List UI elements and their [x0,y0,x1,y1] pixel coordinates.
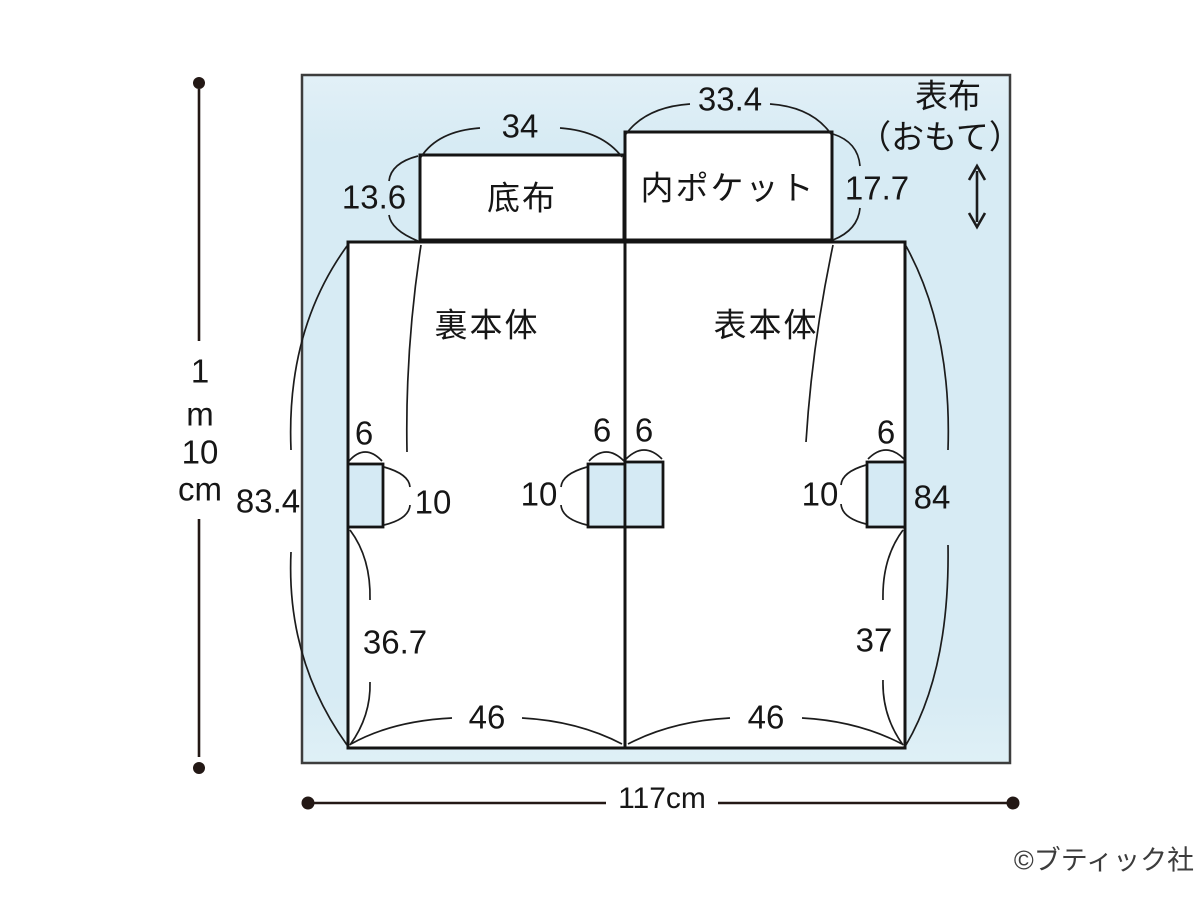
cutting-layout-diagram: 底布 内ポケット 裏本体 表本体 34 33.4 13.6 17.7 83.4 … [0,0,1200,900]
dim-omote-lower: 37 [856,624,893,657]
dim-notch-width-left: 6 [355,417,373,450]
piece-ura-label: 裏本体 [435,309,540,342]
dim-soko-height: 13.6 [342,181,406,214]
dim-notch-depth-center: 10 [521,478,558,511]
dim-omote-height: 84 [914,481,951,514]
dim-notch-width-center-left: 6 [593,414,611,447]
piece-soko-label: 底布 [487,182,557,215]
dim-notch-width-right: 6 [877,416,895,449]
notch-center-left-rect [588,464,625,527]
dim-notch-depth-right: 10 [802,478,839,511]
fabric-surface-label-1: 表布 [915,80,981,113]
dim-notch-depth-left: 10 [415,486,452,519]
piece-pocket-label: 内ポケット [641,172,816,205]
dim-ura-bottom-width: 46 [469,701,506,734]
notch-right-rect [867,462,905,527]
fabric-height-part-4: cm [178,473,222,506]
dim-soko-width: 34 [502,110,539,143]
dim-notch-width-center-right: 6 [635,414,653,447]
dim-omote-bottom-width: 46 [748,701,785,734]
fabric-height-part-1: 1 [191,355,209,388]
copyright-credit: ©ブティック社 [1014,848,1194,875]
notch-left-rect [348,464,383,527]
fabric-surface-label-2: （おもて） [858,121,1022,154]
piece-omote-label: 表本体 [714,309,819,342]
dim-ura-height: 83.4 [236,485,300,518]
dim-ura-lower: 36.7 [363,626,427,659]
dim-pocket-height: 17.7 [845,172,909,205]
dim-pocket-width: 33.4 [698,83,762,116]
pattern-pieces [348,132,905,748]
fabric-height-part-3: 10 [182,436,219,469]
notch-center-right-rect [625,462,663,527]
fabric-height-part-2: m [186,398,214,431]
fabric-width-label: 117cm [618,784,706,814]
